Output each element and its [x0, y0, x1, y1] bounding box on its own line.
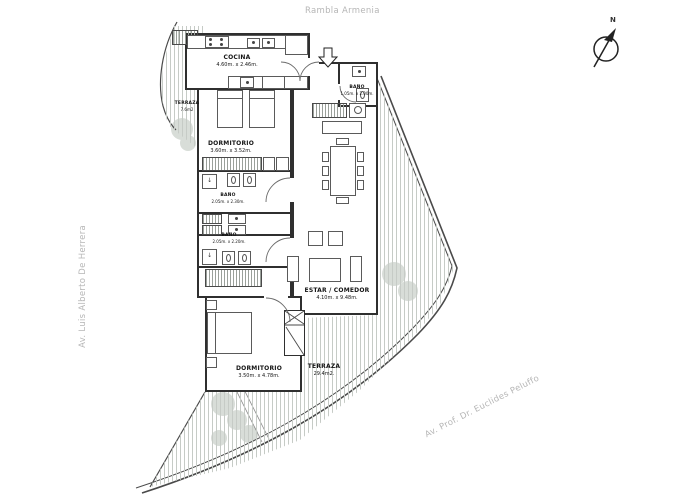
module-dot — [267, 41, 270, 44]
chair — [322, 152, 329, 162]
door-opening-kitchen — [308, 58, 310, 76]
room-label-terraza-sur: TERRAZA 29.4m2. — [308, 363, 340, 377]
sink-dot — [246, 81, 249, 84]
room-label-bano-1: BAÑO 2.05m. x 2.30m. — [211, 193, 244, 204]
room-label-terraza-norte: TERRAZA 7.6m2 — [175, 101, 200, 112]
room-dims: 2.05m. x 2.20m. — [212, 239, 245, 244]
bed-pillow-line — [250, 98, 274, 99]
room-dims: 3.60m. x 3.52m. — [208, 148, 254, 154]
room-name: BAÑO — [340, 85, 373, 90]
chair — [322, 166, 329, 176]
burner-dot — [209, 43, 212, 46]
room-name: TERRAZA — [175, 101, 200, 106]
shower-drain-arrow: ↓ — [207, 253, 212, 259]
room-name: BAÑO — [211, 193, 244, 198]
compass-north-label: N — [610, 16, 616, 24]
armchair — [287, 256, 299, 282]
burner-dot — [220, 38, 223, 41]
room-name: ESTAR / COMEDOR — [305, 287, 370, 294]
door-opening-corridor-1 — [290, 178, 294, 202]
toilet-bowl — [231, 176, 236, 184]
nightstand — [206, 357, 217, 368]
room-dims: 7.6m2 — [175, 107, 200, 112]
floor-plan-canvas: ↓ ↓ — [0, 0, 700, 494]
utility-shelf — [202, 214, 222, 224]
sink-dot — [358, 70, 361, 73]
toilet-bowl — [226, 254, 231, 262]
bed-pillow-line — [218, 98, 242, 99]
counter-divider — [284, 77, 285, 88]
washer-icon — [312, 103, 347, 118]
room-label-bano-2: BAÑO 2.05m. x 2.20m. — [212, 233, 245, 244]
room-name: COCINA — [216, 54, 257, 61]
nightstand — [206, 300, 217, 310]
room-label-estar-comedor: ESTAR / COMEDOR 4.10m. x 9.48m. — [305, 287, 370, 301]
water-heater-box — [276, 157, 289, 171]
chair — [357, 166, 364, 176]
balcony-planter-box — [284, 310, 305, 356]
dining-table — [330, 146, 356, 196]
armchair — [350, 256, 362, 282]
closet-dorm2 — [205, 269, 262, 287]
room-dims: 3.50m. x 4.78m. — [236, 373, 282, 379]
room-dims: 1.05m. x 2.00m. — [340, 91, 373, 96]
chair — [322, 180, 329, 190]
wall-bath2-bottom — [199, 266, 290, 268]
counter-divider — [262, 77, 263, 88]
room-dims: 4.10m. x 9.48m. — [305, 295, 370, 301]
vanity-dot — [235, 228, 238, 231]
door-opening-entry — [281, 62, 319, 65]
vanity-dot — [235, 217, 238, 220]
bidet-bowl — [242, 254, 247, 262]
room-label-cocina: COCINA 4.60m. x 2.46m. — [216, 54, 257, 68]
chair — [357, 152, 364, 162]
room-label-dormitorio-2: DORMITORIO 3.50m. x 4.78m. — [236, 365, 282, 379]
room-dims: 2.05m. x 2.30m. — [211, 199, 244, 204]
chair — [357, 180, 364, 190]
water-heater-box — [263, 157, 275, 171]
chair — [336, 197, 349, 204]
room-name: DORMITORIO — [236, 365, 282, 372]
fridge-icon — [285, 35, 308, 55]
module-dot — [252, 41, 255, 44]
door-opening-bedroom-2 — [264, 296, 288, 299]
room-label-bano-servicio: BAÑO 1.05m. x 2.00m. — [340, 85, 373, 96]
room-dims: 29.4m2. — [308, 371, 340, 377]
bed — [217, 90, 243, 128]
room-name: TERRAZA — [308, 363, 340, 370]
burner-dot — [209, 38, 212, 41]
bidet-bowl — [247, 176, 252, 184]
burner-dot — [220, 43, 223, 46]
street-label-left: Av. Luis Alberto De Herrera — [78, 225, 88, 348]
room-name: DORMITORIO — [208, 140, 254, 147]
chair — [336, 138, 349, 145]
coffee-table — [328, 231, 343, 246]
bed — [207, 312, 252, 354]
street-label-top: Rambla Armenia — [305, 6, 380, 16]
room-dims: 4.60m. x 2.46m. — [216, 62, 257, 68]
sideboard — [322, 121, 362, 134]
closet-dorm1 — [202, 157, 262, 171]
bed — [249, 90, 275, 128]
sofa — [309, 258, 341, 282]
boiler-circle — [354, 106, 362, 114]
coffee-table — [308, 231, 323, 246]
shower-drain-arrow: ↓ — [207, 178, 212, 184]
room-name: BAÑO — [212, 233, 245, 238]
bed-pillow-line — [215, 313, 216, 353]
room-label-dormitorio-1: DORMITORIO 3.60m. x 3.52m. — [208, 140, 254, 154]
